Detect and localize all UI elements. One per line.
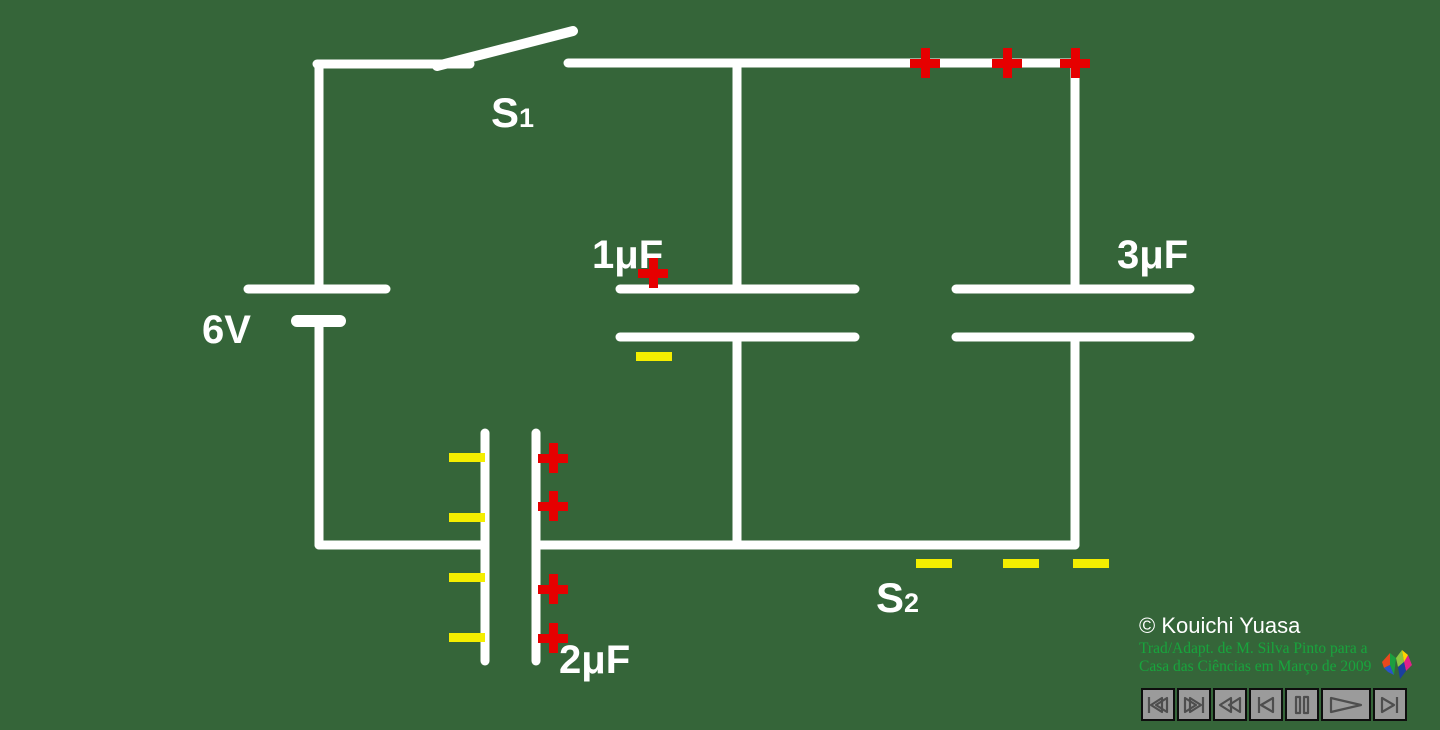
plus-charge-icon [538, 443, 568, 473]
plus-charge-icon [992, 48, 1022, 78]
minus-charge-icon [449, 573, 485, 582]
translation-credit-line1: Trad/Adapt. de M. Silva Pinto para a [1139, 640, 1367, 658]
capacitor-2uf-text: 2μF [559, 638, 630, 682]
minus-charge-icon [1073, 559, 1109, 568]
switch-s2-subscript: 2 [904, 588, 919, 618]
battery-voltage-label: 6V [202, 310, 251, 350]
go-to-start-icon [1145, 694, 1171, 716]
applet-window: { "app": { "background_color": "#356539"… [0, 0, 1440, 730]
play-button[interactable] [1321, 688, 1371, 721]
capacitor-3uf-label: 3μF [1117, 235, 1188, 275]
translation-credit-line2: Casa das Ciências em Março de 2009 [1139, 658, 1371, 676]
capacitor-1uf [620, 63, 855, 545]
switch-s2-letter: S [876, 574, 904, 621]
switch-s1-label: S1 [491, 92, 534, 134]
switch-s1-blade[interactable] [437, 31, 573, 66]
switch-s2-label: S2 [876, 577, 919, 619]
switch-s1-letter: S [491, 89, 519, 136]
minus-charge-icon [449, 453, 485, 462]
step-back-button[interactable] [1249, 688, 1283, 721]
go-to-end-button[interactable] [1177, 688, 1211, 721]
go-to-end-icon [1181, 694, 1207, 716]
play-icon [1326, 694, 1366, 716]
pause-icon [1291, 694, 1313, 716]
minus-charge-icon [916, 559, 952, 568]
capacitor-2uf [485, 433, 536, 661]
go-to-start-button[interactable] [1141, 688, 1175, 721]
step-forward-button[interactable] [1373, 688, 1407, 721]
switch-s1[interactable] [437, 31, 573, 66]
battery-6v [248, 64, 386, 545]
battery-voltage-text: 6V [202, 308, 251, 352]
capacitor-2uf-label: 2μF [559, 640, 630, 680]
plus-charge-icon [1060, 48, 1090, 78]
copyright-text: © Kouichi Yuasa [1139, 613, 1300, 639]
minus-charge-icon [449, 633, 485, 642]
capacitor-1uf-text: 1μF [592, 233, 663, 277]
step-back-icon [1254, 694, 1278, 716]
capacitor-3uf-text: 3μF [1117, 233, 1188, 277]
minus-charge-icon [449, 513, 485, 522]
minus-charge-icon [636, 352, 672, 361]
plus-charge-icon [538, 574, 568, 604]
playback-controls [1141, 688, 1407, 721]
switch-s1-subscript: 1 [519, 103, 534, 133]
fast-rewind-button[interactable] [1213, 688, 1247, 721]
pause-button[interactable] [1285, 688, 1319, 721]
casa-das-ciencias-logo-icon [1381, 649, 1414, 680]
simulation-stage: 6V S1 1μF 3μF 2μF S2 © Kouichi Yuasa Tra… [0, 0, 1440, 730]
capacitor-3uf [956, 63, 1190, 545]
capacitor-1uf-label: 1μF [592, 235, 663, 275]
fast-rewind-icon [1217, 694, 1243, 716]
minus-charge-icon [1003, 559, 1039, 568]
plus-charge-icon [538, 491, 568, 521]
plus-charge-icon [910, 48, 940, 78]
step-forward-icon [1378, 694, 1402, 716]
